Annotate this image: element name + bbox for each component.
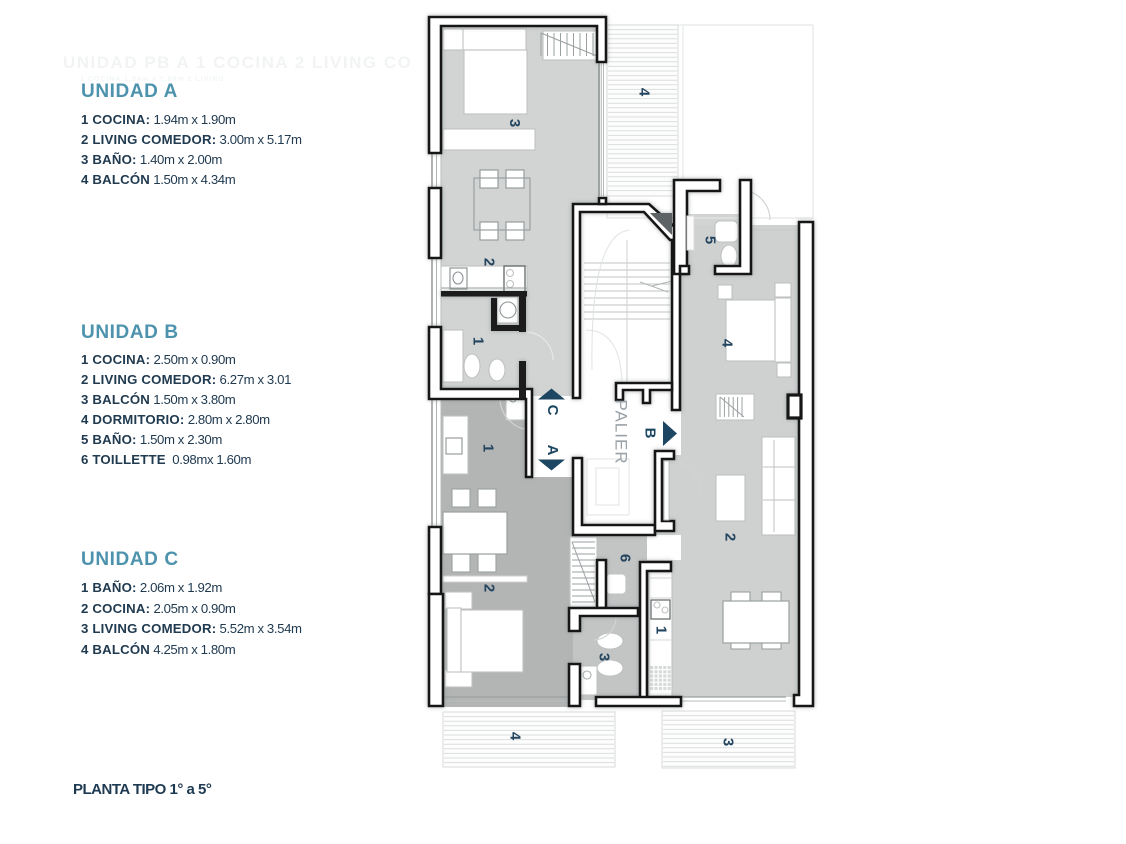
svg-text:1: 1 [470, 337, 487, 345]
svg-text:4: 4 [719, 339, 736, 348]
svg-text:C: C [544, 405, 561, 416]
svg-text:2: 2 [481, 258, 498, 266]
svg-text:3: 3 [596, 653, 613, 661]
svg-text:1: 1 [653, 626, 670, 634]
svg-text:4: 4 [636, 88, 653, 97]
svg-text:2: 2 [481, 584, 498, 592]
svg-text:2: 2 [722, 533, 739, 541]
svg-text:PALIER: PALIER [612, 399, 631, 464]
svg-text:1: 1 [480, 444, 497, 452]
svg-text:4: 4 [507, 732, 524, 741]
svg-text:6: 6 [617, 554, 634, 562]
svg-text:3: 3 [506, 119, 523, 127]
svg-text:3: 3 [720, 738, 737, 746]
svg-text:5: 5 [702, 236, 719, 244]
svg-text:A: A [544, 445, 561, 456]
svg-text:B: B [642, 428, 659, 439]
